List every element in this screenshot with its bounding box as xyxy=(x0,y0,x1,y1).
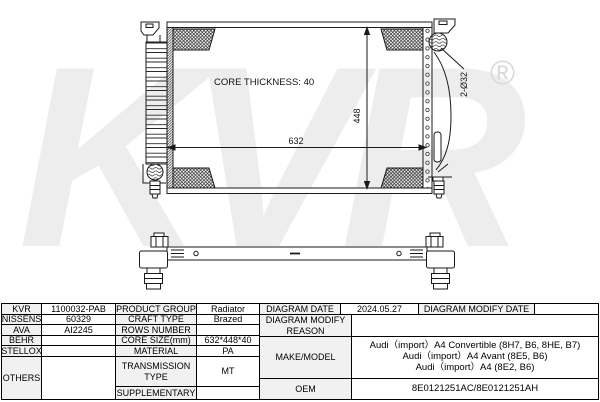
left-tank xyxy=(141,22,167,198)
pad-bottom-left xyxy=(173,168,215,188)
datasheet-page: KVR ® xyxy=(0,0,600,402)
cell-others-code xyxy=(41,356,116,400)
cell-oem-value: 8E0121251AC/8E0121251AH xyxy=(351,378,599,400)
core-bottom-header xyxy=(167,188,432,194)
pad-bottom-right xyxy=(381,168,423,188)
make-model-line-3: Audi（import）A4 (8E2, B6) xyxy=(352,363,598,374)
cell-transmission-type-value: MT xyxy=(196,356,260,387)
core-left-edge xyxy=(167,28,173,189)
pad-top-right xyxy=(381,29,423,50)
dimension-448 xyxy=(365,28,370,189)
core-right-strip xyxy=(423,28,432,189)
radiator-technical-drawing: CORE THICKNESS: 40 632 448 2-Ø32 xyxy=(0,0,600,302)
pipe-dimension-label: 2-Ø32 xyxy=(459,72,469,97)
pad-top-left xyxy=(173,29,215,50)
core-top-header xyxy=(167,22,432,28)
cell-make-model-label: MAKE/MODEL xyxy=(259,336,352,379)
drain-cap xyxy=(147,164,163,180)
cell-make-model-value: Audi（import）A4 Convertible (8H7, B6, 8HE… xyxy=(351,336,599,379)
top-view-right-fitting xyxy=(426,233,455,289)
radiator-front-view xyxy=(141,19,464,198)
radiator-top-view xyxy=(140,233,455,289)
cell-supplementary-value xyxy=(196,386,260,400)
cell-modify-reason-label: DIAGRAM MODIFY REASON xyxy=(259,314,352,337)
width-dimension-label: 632 xyxy=(288,136,303,146)
cell-modify-reason-value xyxy=(351,314,599,337)
cell-supplementary-label: SUPPLEMENTARY xyxy=(115,386,197,400)
pipe-leader-line xyxy=(441,48,464,69)
height-dimension-label: 448 xyxy=(352,108,362,123)
core-thickness-label: CORE THICKNESS: 40 xyxy=(214,77,314,88)
cell-brand-others: OTHERS xyxy=(1,356,42,400)
cell-transmission-type-label: TRANSMISSION TYPE xyxy=(115,356,197,387)
cell-oem-label: OEM xyxy=(259,378,352,400)
top-view-left-fitting xyxy=(140,233,169,289)
right-tank xyxy=(428,19,464,198)
filler-cap xyxy=(429,33,447,51)
